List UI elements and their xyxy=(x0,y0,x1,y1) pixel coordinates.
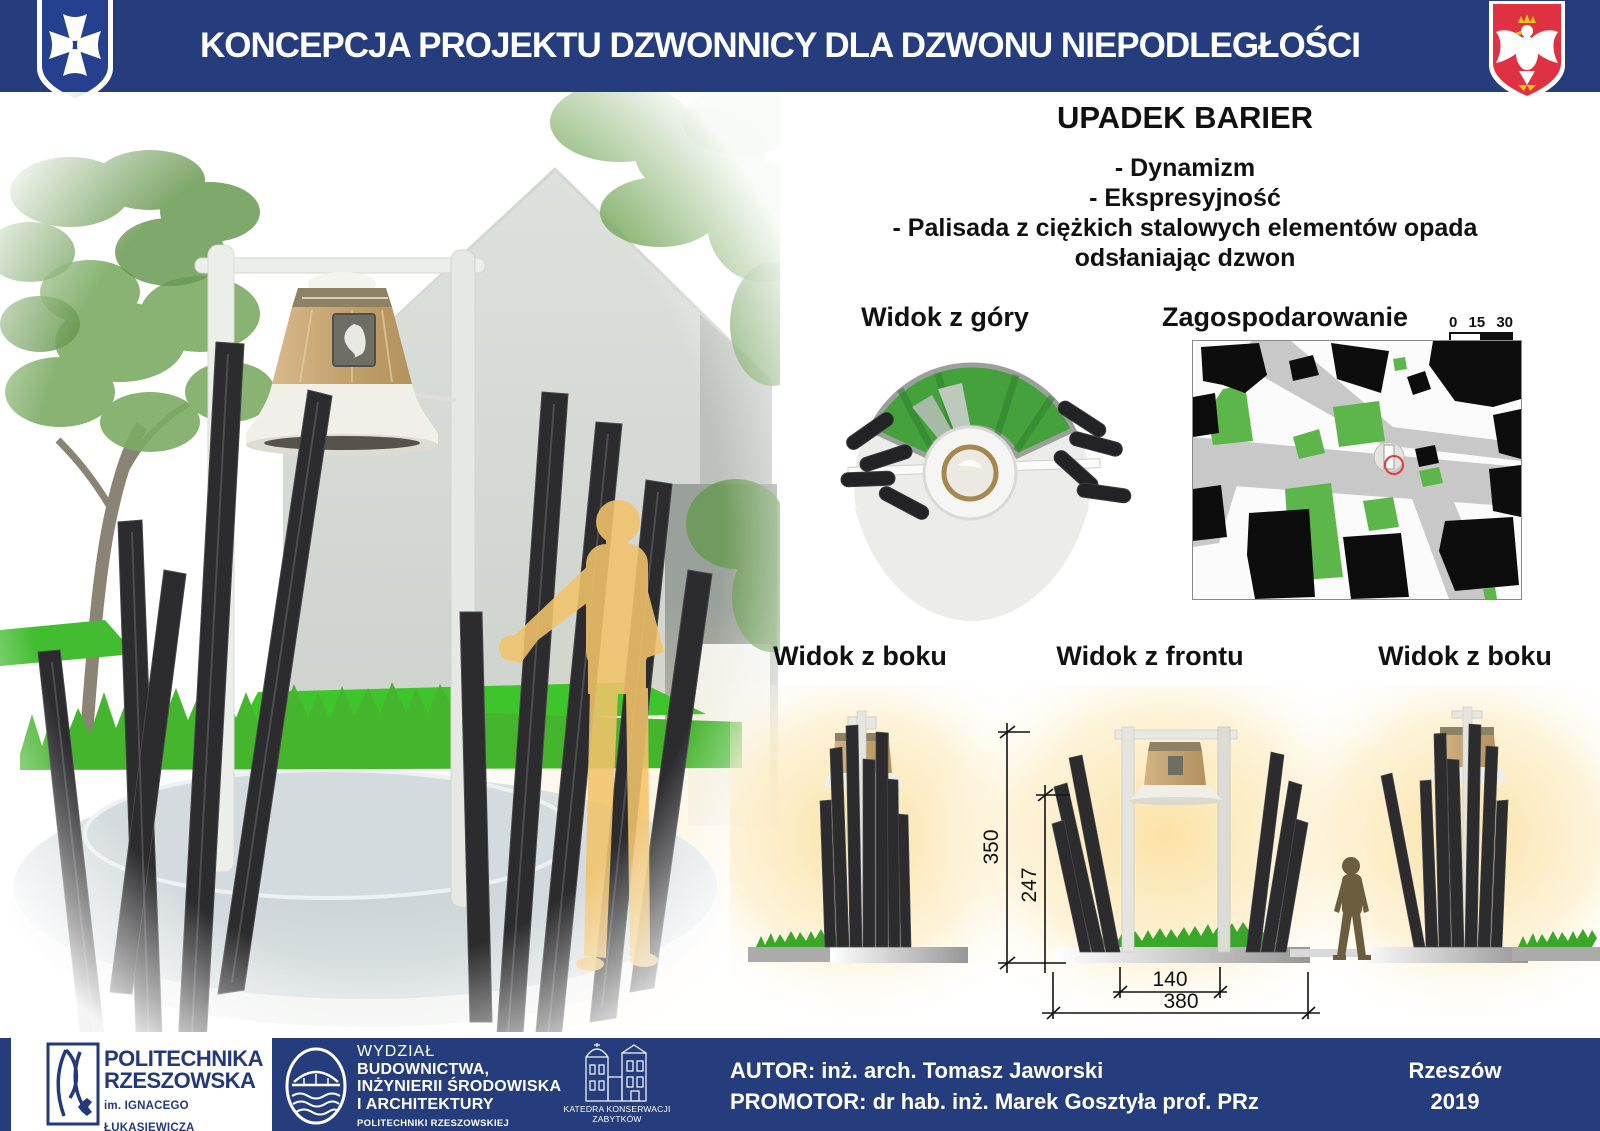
faculty-line4: I ARCHITEKTURY xyxy=(357,1096,587,1114)
city-year-block: Rzeszów 2019 xyxy=(1370,1055,1540,1117)
department-logo-icon xyxy=(578,1043,656,1103)
bell-top-view xyxy=(924,427,1016,519)
elevations-image: 350 247 140 380 xyxy=(730,685,1600,1030)
dimension-total-height: 350 xyxy=(980,829,1003,864)
label-front-view: Widok z frontu xyxy=(1040,641,1260,672)
faculty-logo-icon xyxy=(284,1046,348,1126)
scale-15: 15 xyxy=(1468,314,1485,331)
faculty-line2: BUDOWNICTWA, xyxy=(357,1061,587,1079)
department-caption: KATEDRA KONSERWACJI ZABYTKÓW xyxy=(562,1104,672,1124)
university-name-line2: RZESZOWSKA xyxy=(104,1070,274,1092)
credits-block: AUTOR: inż. arch. Tomasz Jaworski PROMOT… xyxy=(730,1055,1370,1117)
dimension-total-width: 380 xyxy=(1163,990,1198,1013)
scale-0: 0 xyxy=(1449,314,1457,331)
label-site-plan: Zagospodarowanie xyxy=(1160,302,1410,333)
faculty-line5: POLITECHNIKI RZESZOWSKIEJ xyxy=(357,1115,587,1131)
faculty-line1: WYDZIAŁ xyxy=(357,1043,587,1061)
dimension-inner-width: 140 xyxy=(1152,968,1187,991)
concept-heading: UPADEK BARIER xyxy=(780,100,1590,136)
bullet-palisada: - Palisada z ciężkich stalowych elementó… xyxy=(860,213,1510,273)
bullet-dynamizm: - Dynamizm xyxy=(860,153,1510,183)
university-name: POLITECHNIKA RZESZOWSKA im. IGNACEGO ŁUK… xyxy=(104,1048,274,1131)
label-side-view-right: Widok z boku xyxy=(1365,641,1565,672)
main-render-image xyxy=(0,92,780,1032)
faculty-line3: INŻYNIERII ŚRODOWISKA xyxy=(357,1078,587,1096)
site-plan-image xyxy=(1192,340,1522,600)
department-line2: ZABYTKÓW xyxy=(562,1114,672,1124)
label-top-view: Widok z góry xyxy=(845,302,1045,333)
bullet-ekspresyjnosc: - Ekspresyjność xyxy=(860,183,1510,213)
page-title: KONCEPCJA PROJEKTU DZWONNICY DLA DZWONU … xyxy=(130,0,1430,92)
year: 2019 xyxy=(1370,1086,1540,1117)
department-line1: KATEDRA KONSERWACJI xyxy=(562,1104,672,1114)
city: Rzeszów xyxy=(1370,1055,1540,1086)
dimension-posts-height: 247 xyxy=(1018,867,1041,902)
faculty-name: WYDZIAŁ BUDOWNICTWA, INŻYNIERII ŚRODOWIS… xyxy=(357,1043,587,1131)
author-line: AUTOR: inż. arch. Tomasz Jaworski xyxy=(730,1055,1370,1086)
poster-board: KONCEPCJA PROJEKTU DZWONNICY DLA DZWONU … xyxy=(0,0,1600,1131)
rzeszow-crest-icon xyxy=(34,0,116,106)
promotor-line: PROMOTOR: dr hab. inż. Marek Gosztyła pr… xyxy=(730,1086,1370,1117)
poland-eagle-icon xyxy=(1485,1,1569,103)
university-name-line3: im. IGNACEGO ŁUKASIEWICZA xyxy=(104,1095,274,1131)
label-side-view-left: Widok z boku xyxy=(760,641,960,672)
concept-bullets: - Dynamizm - Ekspresyjność - Palisada z … xyxy=(860,153,1510,273)
vignette xyxy=(0,92,780,1032)
top-view-image xyxy=(820,345,1140,635)
scale-30: 30 xyxy=(1496,314,1513,331)
university-name-line1: POLITECHNIKA xyxy=(104,1048,274,1070)
politechnika-logo-icon xyxy=(46,1042,100,1126)
